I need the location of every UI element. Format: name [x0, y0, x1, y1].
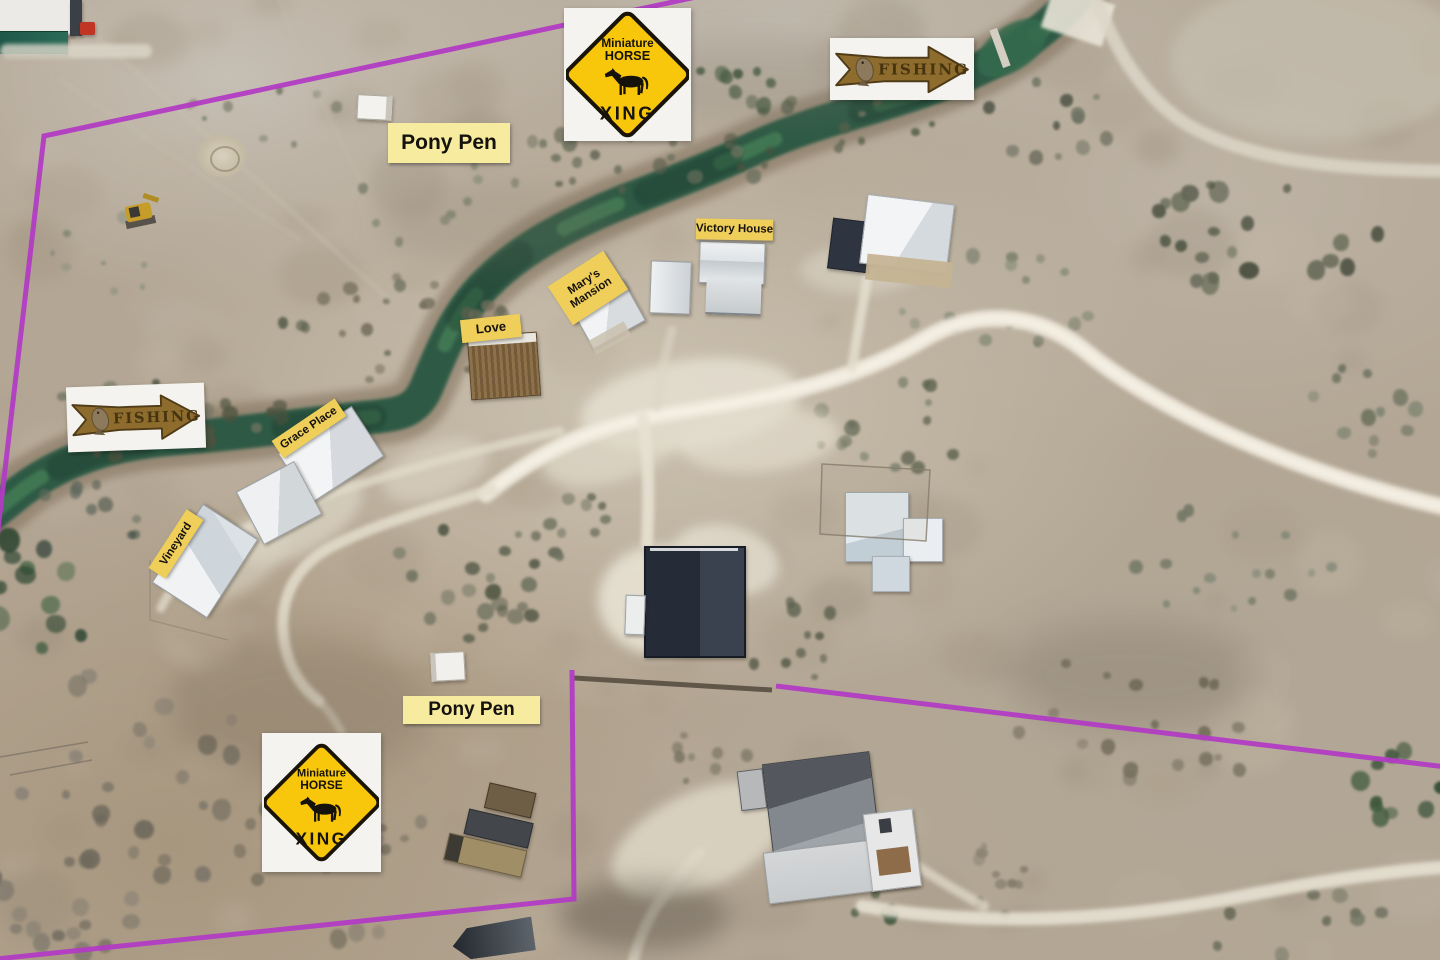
- fishing-text: FISHING: [113, 407, 201, 427]
- love-label-text: Love: [475, 320, 507, 338]
- fishing-sign-left: FISHING: [66, 383, 206, 453]
- fishing-text: FISHING: [878, 60, 969, 78]
- aerial-property-photo: Pony Pen Pony Pen Victory House Mary's M…: [0, 0, 1440, 960]
- fence-enclosure: [820, 464, 930, 541]
- fishing-sign-top-right: FISHING: [830, 38, 974, 100]
- horse-xing-sign-top-svg: Miniature HORSE XING: [566, 10, 689, 139]
- xing-line2: HORSE: [605, 48, 651, 63]
- xing-line3: XING: [600, 103, 655, 124]
- victory-house-label: Victory House: [696, 218, 773, 240]
- victory-house-label-text: Victory House: [696, 222, 773, 236]
- xing-line3: XING: [296, 829, 348, 849]
- horse-xing-sign-bottom: Miniature HORSE XING: [262, 733, 381, 872]
- pony-pen-label-top-text: Pony Pen: [401, 131, 497, 155]
- boundary-line-right: [776, 686, 1440, 767]
- pony-pen-label-top: Pony Pen: [388, 123, 510, 163]
- fishing-sign-top-right-svg: FISHING: [833, 41, 971, 98]
- hedge-trench: [574, 678, 772, 690]
- horse-xing-sign-top: Miniature HORSE XING: [564, 8, 691, 141]
- pony-pen-label-bottom-text: Pony Pen: [428, 699, 515, 720]
- xing-line2: HORSE: [300, 778, 343, 792]
- horse-xing-sign-bottom-svg: Miniature HORSE XING: [264, 742, 379, 863]
- fishing-sign-left-svg: FISHING: [69, 387, 203, 448]
- fence-bottomleft: [0, 742, 92, 775]
- boundary-and-fences: [0, 0, 1440, 960]
- pony-pen-label-bottom: Pony Pen: [403, 696, 540, 724]
